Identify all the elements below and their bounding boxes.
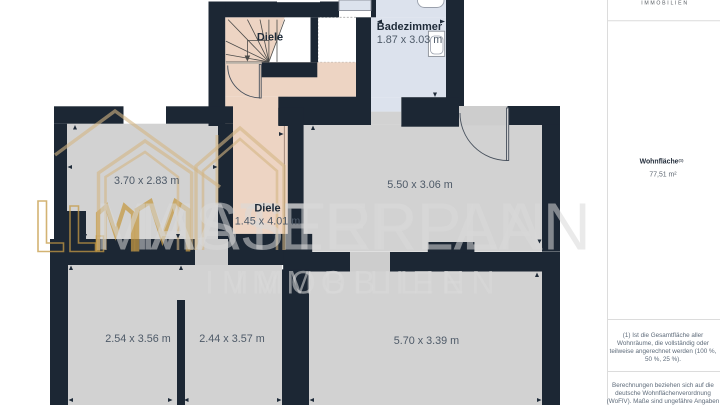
svg-text:50 %, 25 %).: 50 %, 25 %). <box>645 356 681 363</box>
svg-text:deutsche Wohnflächenverordnung: deutsche Wohnflächenverordnung <box>615 390 711 397</box>
svg-text:teilweise angerechnet werden (: teilweise angerechnet werden (100 %, <box>610 348 717 355</box>
svg-text:5.50 x 3.06 m: 5.50 x 3.06 m <box>387 179 452 191</box>
svg-text:1.87 x 3.03 m: 1.87 x 3.03 m <box>377 34 442 46</box>
svg-text:MASTERPLAN: MASTERPLAN <box>140 191 591 265</box>
svg-text:Wohnräume, die vollständig ode: Wohnräume, die vollständig oder <box>617 340 709 347</box>
svg-text:2.44 x 3.57 m: 2.44 x 3.57 m <box>199 333 264 345</box>
svg-text:Badezimmer: Badezimmer <box>377 21 443 33</box>
svg-text:Wohnfläche(1): Wohnfläche(1) <box>640 158 684 166</box>
svg-text:(WoFlV). Maße sind ungefähre A: (WoFlV). Maße sind ungefähre Angaben <box>607 398 720 405</box>
svg-text:Diele: Diele <box>254 203 280 215</box>
svg-text:IMMOBILIEN: IMMOBILIEN <box>235 265 502 301</box>
svg-text:1.45 x 4.01 m: 1.45 x 4.01 m <box>235 216 300 228</box>
svg-text:5.70 x 3.39 m: 5.70 x 3.39 m <box>394 335 459 347</box>
svg-text:77,51 m²: 77,51 m² <box>649 172 677 179</box>
svg-text:(1) Ist die Gesamtfläche aller: (1) Ist die Gesamtfläche aller <box>623 332 704 339</box>
svg-text:Berechnungen beziehen sich auf: Berechnungen beziehen sich auf die <box>612 382 714 389</box>
svg-text:2.54 x 3.56 m: 2.54 x 3.56 m <box>105 333 170 345</box>
svg-text:Diele: Diele <box>257 32 283 44</box>
svg-text:3.70 x 2.83 m: 3.70 x 2.83 m <box>114 175 179 187</box>
svg-text:IMMOBILIEN: IMMOBILIEN <box>641 0 689 6</box>
